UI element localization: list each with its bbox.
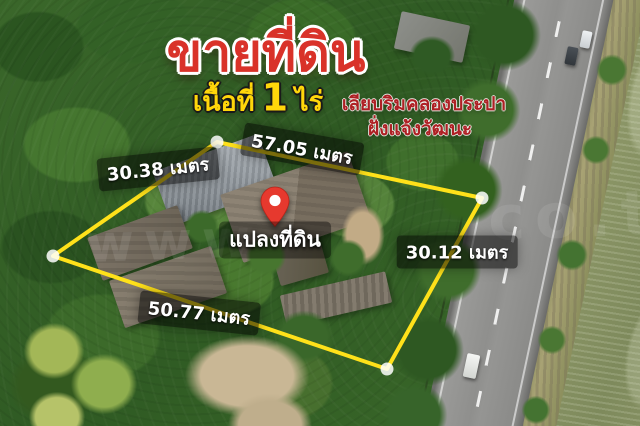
area-unit: ไร่: [295, 80, 323, 123]
land-sale-ad-image: www co.th ขายที่ดิน เนื้อที่ 1 ไร่ เลียบ…: [0, 0, 640, 426]
area-number: 1: [262, 76, 288, 120]
boundary-corner-dot: [381, 363, 394, 376]
boundary-corner-dot: [47, 250, 60, 263]
location-line-2: ฝั่งแจ้งวัฒนะ: [368, 114, 472, 144]
area-prefix: เนื้อที่: [193, 80, 255, 123]
plot-label: แปลงที่ดิน: [219, 222, 331, 259]
land-area: เนื้อที่ 1 ไร่: [193, 76, 323, 123]
measurement-right: 30.12 เมตร: [397, 236, 518, 269]
boundary-corner-dot: [476, 192, 489, 205]
